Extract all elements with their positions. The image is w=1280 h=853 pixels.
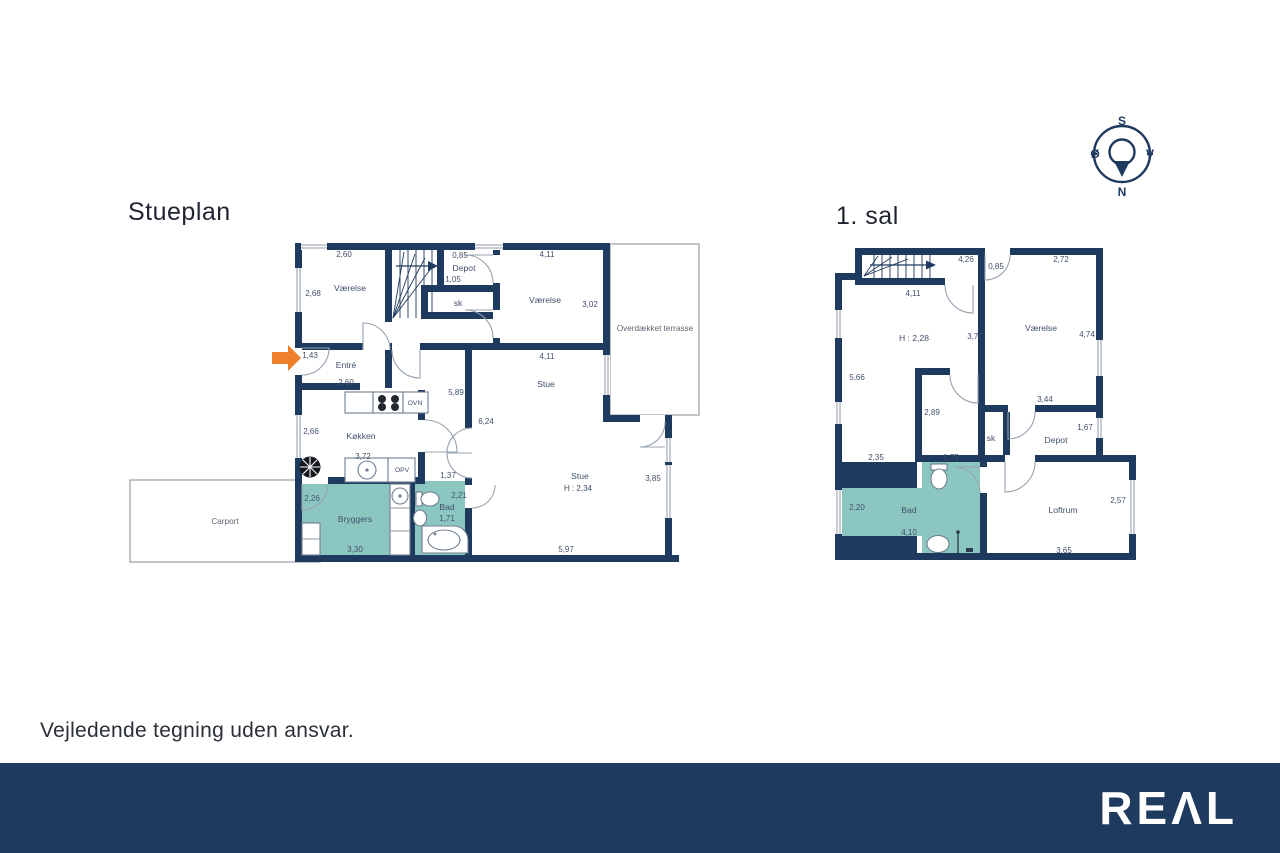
dim: 3,85 (645, 474, 661, 483)
dim: 4,74 (1079, 330, 1095, 339)
room-label: Værelse (334, 283, 366, 293)
stairs (393, 250, 438, 318)
compass-north: N (1118, 185, 1127, 199)
real-logo: REΛL (1099, 781, 1280, 835)
dim: 4,26 (958, 255, 974, 264)
dim: 3,72 (355, 452, 371, 461)
room-label: Loftrum (1048, 505, 1077, 515)
floorplan-page: S V N Ø Stueplan 1. sal (0, 0, 1280, 853)
dim: 3,30 (347, 545, 363, 554)
dim: 1,71 (439, 514, 455, 523)
dim: 2,66 (303, 427, 319, 436)
dim: 6,24 (478, 417, 494, 426)
dim: 2,60 (338, 378, 354, 387)
room-label: Stue (571, 471, 589, 481)
dishwasher-label: OPV (395, 467, 410, 474)
oven-label: OVN (408, 400, 423, 407)
stueplan-drawing: 2,60 Værelse 2,68 0,85 Depot 1,05 sk 4,1… (120, 240, 705, 570)
first-floor-drawing: 4,26 0,85 2,72 4,11 H : 2,28 5,66 3,77 V… (830, 245, 1140, 570)
dim: 5,89 (448, 388, 464, 397)
room-label: Bryggers (338, 514, 372, 524)
dim: 3,02 (582, 300, 598, 309)
dim: 1,67 (1077, 423, 1093, 432)
dim: 3,65 (1056, 546, 1072, 555)
dim: 2,21 (451, 491, 467, 500)
room-label: Stue (537, 379, 555, 389)
compass-south: S (1118, 114, 1126, 128)
dim: 1,05 (445, 275, 461, 284)
dim: 1,43 (302, 351, 318, 360)
room-label: Køkken (346, 431, 375, 441)
title-stueplan: Stueplan (128, 198, 231, 227)
dim: 2,20 (849, 503, 865, 512)
room-label: Depot (453, 263, 477, 273)
disclaimer-text: Vejledende tegning uden ansvar. (40, 719, 354, 743)
washbasin-icon (414, 510, 427, 526)
title-first-floor: 1. sal (836, 202, 899, 231)
footer-banner: REΛL (0, 763, 1280, 853)
dim: 3,44 (1037, 395, 1053, 404)
compass-rose: S V N Ø (1088, 112, 1156, 200)
room-label: Bad (439, 502, 455, 512)
dim: 3,77 (967, 332, 983, 341)
compass-needle-icon (1114, 161, 1130, 177)
room-label: Entré (336, 360, 357, 370)
room-label: Bad (901, 505, 917, 515)
dim: 0,85 (452, 251, 468, 260)
dim: 2,35 (868, 453, 884, 462)
compass-east: Ø (1090, 147, 1099, 161)
wood-stove-icon (300, 457, 321, 478)
room-label: Carport (211, 517, 239, 526)
room-label: sk (987, 433, 996, 443)
dim: 4,11 (540, 352, 556, 361)
dim: 4,10 (901, 528, 917, 537)
dim: 2,89 (924, 408, 940, 417)
room-label: Depot (1045, 435, 1069, 445)
room-label: Værelse (1025, 323, 1057, 333)
washbasin-icon (927, 536, 949, 553)
ceiling-height: H : 2,34 (564, 484, 593, 493)
dim: 2,26 (304, 494, 320, 503)
compass-west: V (1146, 147, 1154, 161)
room-label: sk (454, 298, 463, 308)
dim: 2,68 (305, 289, 321, 298)
dim: 4,11 (906, 289, 922, 298)
ceiling-height: H : 2,28 (899, 333, 929, 343)
dim: 2,72 (1053, 255, 1069, 264)
dim: 4,11 (540, 250, 556, 259)
room-label: Overdækket terrasse (617, 324, 694, 333)
dim: 5,66 (849, 373, 865, 382)
stairs (864, 255, 936, 278)
dim: 2,57 (1110, 496, 1126, 505)
room-label: Værelse (529, 295, 561, 305)
dim: 0,85 (988, 262, 1004, 271)
dim: 2,60 (336, 250, 352, 259)
stueplan-labels: 2,60 Værelse 2,68 0,85 Depot 1,05 sk 4,1… (211, 250, 693, 554)
dim: 1,75 (943, 453, 959, 462)
dim: 1,37 (440, 471, 456, 480)
dim: 5,97 (558, 545, 574, 554)
